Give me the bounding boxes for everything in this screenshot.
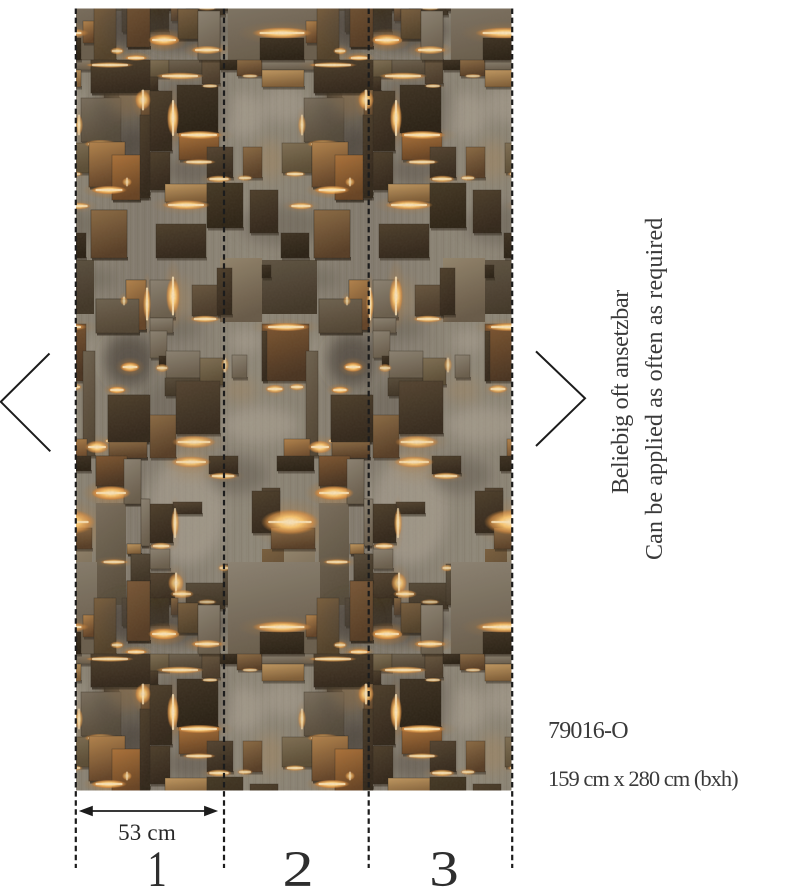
svg-text:159 cm x 280 cm (bxh): 159 cm x 280 cm (bxh) — [548, 766, 738, 791]
svg-text:1: 1 — [147, 841, 166, 895]
svg-text:3: 3 — [429, 841, 458, 895]
svg-text:2: 2 — [282, 841, 313, 895]
svg-text:Beliebig oft ansetzbar: Beliebig oft ansetzbar — [608, 290, 634, 494]
svg-text:79016-O: 79016-O — [548, 718, 628, 744]
svg-text:Can be applied as often as req: Can be applied as often as required — [642, 218, 668, 560]
